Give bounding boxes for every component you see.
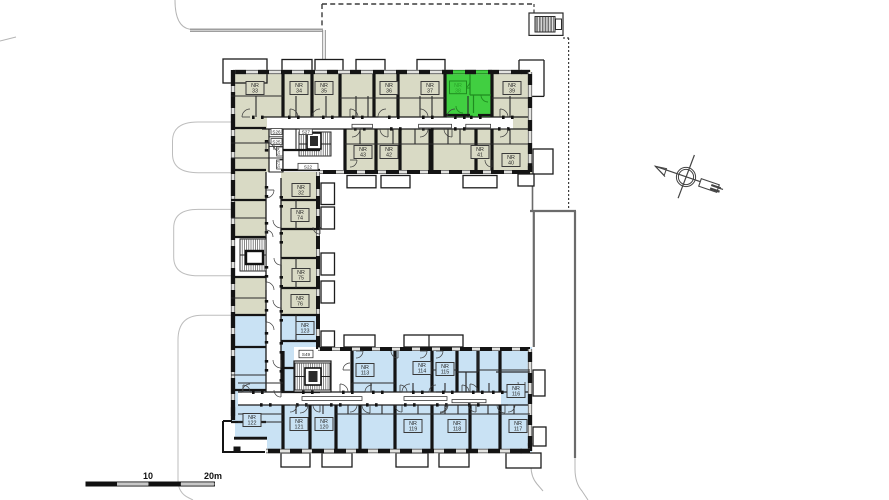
svg-text:37: 37 (427, 89, 433, 95)
svg-text:39: 39 (509, 89, 515, 95)
svg-text:35: 35 (321, 89, 327, 95)
svg-text:32: 32 (298, 191, 304, 197)
svg-text:115: 115 (441, 370, 450, 376)
svg-text:120: 120 (320, 425, 329, 431)
svg-text:74: 74 (297, 216, 303, 222)
svg-text:43: 43 (360, 153, 366, 159)
svg-text:116: 116 (512, 392, 521, 398)
svg-text:S49: S49 (302, 352, 311, 357)
svg-text:113: 113 (361, 371, 370, 377)
svg-text:119: 119 (409, 427, 418, 433)
svg-text:114: 114 (418, 369, 427, 375)
svg-text:121: 121 (295, 425, 304, 431)
svg-text:S23: S23 (276, 160, 281, 168)
svg-text:34: 34 (296, 89, 302, 95)
svg-text:S22: S22 (304, 164, 313, 169)
svg-text:S26: S26 (272, 129, 281, 134)
svg-text:123: 123 (301, 329, 310, 335)
svg-text:S25: S25 (272, 139, 281, 144)
svg-text:S24: S24 (276, 147, 281, 155)
svg-text:40: 40 (508, 161, 514, 167)
svg-text:36: 36 (386, 89, 392, 95)
svg-text:S27: S27 (302, 130, 311, 135)
svg-text:20m: 20m (204, 471, 222, 481)
svg-text:117: 117 (514, 427, 523, 433)
svg-text:75: 75 (298, 276, 304, 282)
svg-text:122: 122 (248, 421, 257, 427)
svg-text:76: 76 (297, 302, 303, 308)
svg-text:118: 118 (453, 427, 462, 433)
svg-text:10: 10 (143, 471, 153, 481)
svg-text:38: 38 (455, 88, 461, 94)
svg-text:42: 42 (386, 153, 392, 159)
svg-text:33: 33 (252, 89, 258, 95)
svg-text:41: 41 (477, 153, 483, 159)
